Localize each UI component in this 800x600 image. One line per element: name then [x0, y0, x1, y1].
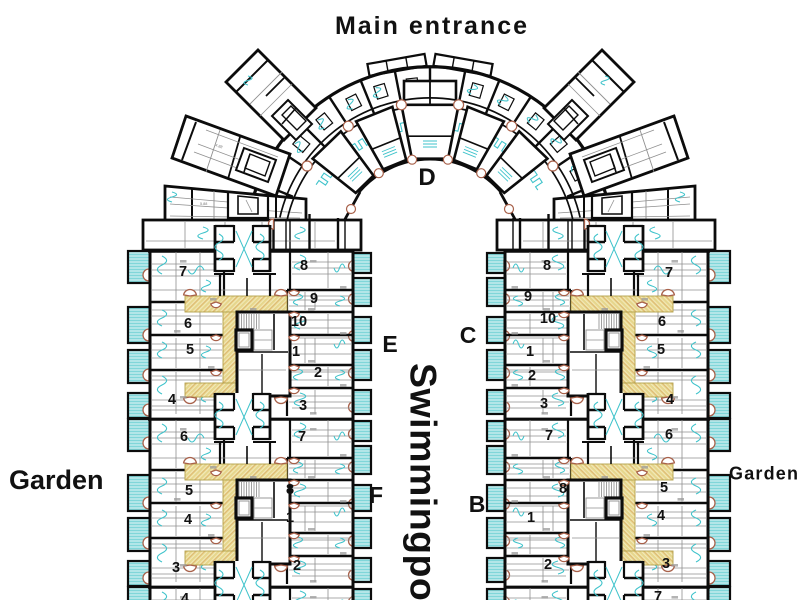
svg-text:8: 8 — [300, 258, 308, 274]
svg-text:7: 7 — [179, 264, 187, 280]
svg-text:6: 6 — [184, 316, 192, 332]
svg-text:2: 2 — [293, 558, 301, 574]
svg-text:10: 10 — [291, 314, 307, 330]
svg-text:8: 8 — [286, 482, 294, 498]
svg-text:Garden: Garden — [9, 465, 104, 495]
svg-text:4: 4 — [181, 591, 189, 600]
svg-text:7: 7 — [654, 589, 662, 600]
svg-text:6: 6 — [665, 427, 673, 443]
svg-text:9: 9 — [310, 291, 318, 307]
svg-text:1: 1 — [526, 344, 534, 360]
svg-text:2: 2 — [528, 368, 536, 384]
svg-text:D: D — [418, 164, 435, 191]
svg-text:1: 1 — [527, 510, 535, 526]
svg-text:4: 4 — [657, 508, 665, 524]
svg-text:Swimmingpool: Swimmingpool — [403, 363, 445, 600]
svg-text:3: 3 — [172, 560, 180, 576]
svg-text:10: 10 — [540, 311, 556, 327]
svg-text:4: 4 — [184, 512, 192, 528]
svg-text:3: 3 — [540, 396, 548, 412]
svg-text:E: E — [382, 331, 397, 357]
svg-text:4: 4 — [168, 392, 176, 408]
svg-text:5: 5 — [185, 483, 193, 499]
svg-text:7: 7 — [545, 428, 553, 444]
svg-text:6: 6 — [658, 314, 666, 330]
svg-text:8: 8 — [543, 258, 551, 274]
svg-text:F: F — [369, 482, 383, 508]
svg-text:5: 5 — [186, 342, 194, 358]
svg-text:6: 6 — [180, 429, 188, 445]
svg-text:8: 8 — [559, 481, 567, 497]
svg-text:9: 9 — [524, 289, 532, 305]
svg-text:2: 2 — [314, 365, 322, 381]
svg-text:1: 1 — [292, 344, 300, 360]
svg-text:B: B — [469, 491, 486, 517]
svg-text:2: 2 — [544, 557, 552, 573]
svg-text:5: 5 — [657, 342, 665, 358]
svg-text:5: 5 — [660, 480, 668, 496]
svg-text:5.88: 5.88 — [200, 202, 207, 206]
svg-text:C: C — [460, 322, 477, 348]
svg-text:7: 7 — [298, 429, 306, 445]
svg-text:3: 3 — [299, 398, 307, 414]
svg-text:7: 7 — [665, 265, 673, 281]
svg-text:Garden: Garden — [729, 464, 799, 484]
svg-text:3: 3 — [662, 556, 670, 572]
svg-text:Main entrance: Main entrance — [335, 12, 529, 40]
svg-text:4: 4 — [666, 392, 674, 408]
svg-text:1: 1 — [286, 510, 294, 526]
